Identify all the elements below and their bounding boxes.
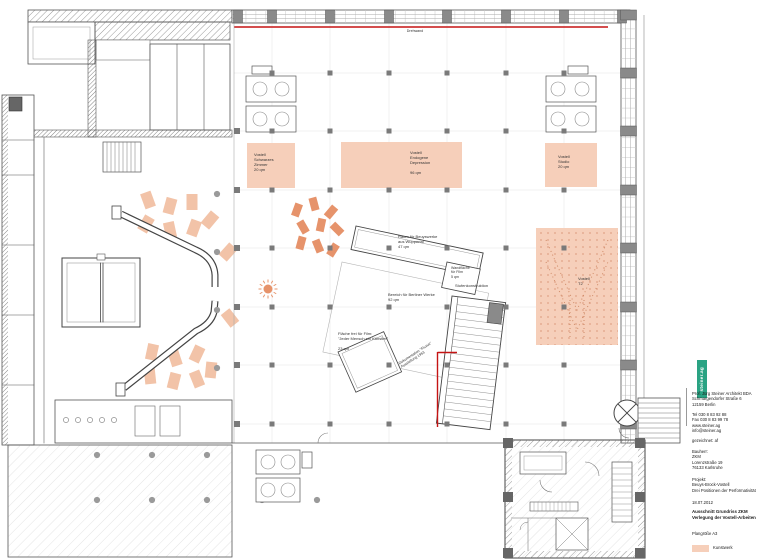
architect-address: Prof. Jürg Steiner Architekt BDA Schmarg…	[692, 391, 752, 407]
legend-kunstwerk-swatch	[692, 545, 709, 552]
shelving-north-right	[546, 66, 596, 132]
label-t2: Vostell T2	[578, 276, 608, 286]
room-with-double-door	[62, 254, 140, 327]
stair-east	[638, 398, 680, 443]
artwork-tables	[137, 191, 344, 390]
hall-north-wall	[232, 10, 630, 23]
architect-contact: Tel 030 8 83 92 88 Fax 030 8 83 99 78 ww…	[692, 412, 728, 434]
shelving-south	[256, 450, 312, 502]
sheet-size: Plangröße A3	[692, 531, 717, 536]
label-schwarzes-zimmer: Vostell Schwarzes Zimmer 20 qm	[254, 152, 294, 172]
plan-title: Ausschnitt Grundriss ZKM Verlegung der V…	[692, 509, 756, 520]
plan-drawing	[0, 0, 768, 560]
hall-east-wall	[621, 15, 644, 443]
label-stufen: Stufenkonstruktion	[455, 283, 515, 288]
floor-plan-sheet: Drehwand Vostell Schwarzes Zimmer 20 qm …	[0, 0, 768, 560]
stair-west	[103, 142, 141, 172]
legend-kunstwerk-label: Kunstwerk	[713, 545, 733, 550]
sheet-edge-mark	[686, 388, 687, 426]
shelving-north-left	[246, 66, 296, 132]
label-endogene-depression: Vostell Endogene Depression 96 qm	[410, 150, 460, 175]
drehwand-label: Drehwand	[392, 29, 438, 33]
door-arc	[318, 433, 328, 443]
label-berliner: Bereich für Berliner Werke 92 qm	[388, 292, 454, 302]
plan-date: 18.07.2012	[692, 500, 713, 505]
area-t2	[536, 228, 618, 345]
sun-symbol	[259, 280, 278, 299]
label-beuyswerke: Raum für Beuyswerke aus Wuppertal 47 qm	[398, 234, 456, 249]
project: Projekt: Beuys-Brock-Vostell Drei Positi…	[692, 477, 756, 493]
south-west-hall	[8, 445, 232, 557]
client: Bauherr: ZKM Lorenzstraße 19 76133 Karls…	[692, 449, 723, 471]
label-film: Fläche frei für Film: "Jeder Mensch ein …	[338, 331, 398, 351]
service-block-south-east	[503, 438, 645, 558]
label-wandflaeche: Wandfläche für Film 5 qm	[451, 266, 481, 279]
label-studio: Vostell Studio 20 qm	[558, 154, 594, 169]
drawn-by: gezeichnet: af	[692, 438, 718, 443]
south-west-block	[55, 400, 232, 443]
existing-building-west	[2, 10, 232, 557]
